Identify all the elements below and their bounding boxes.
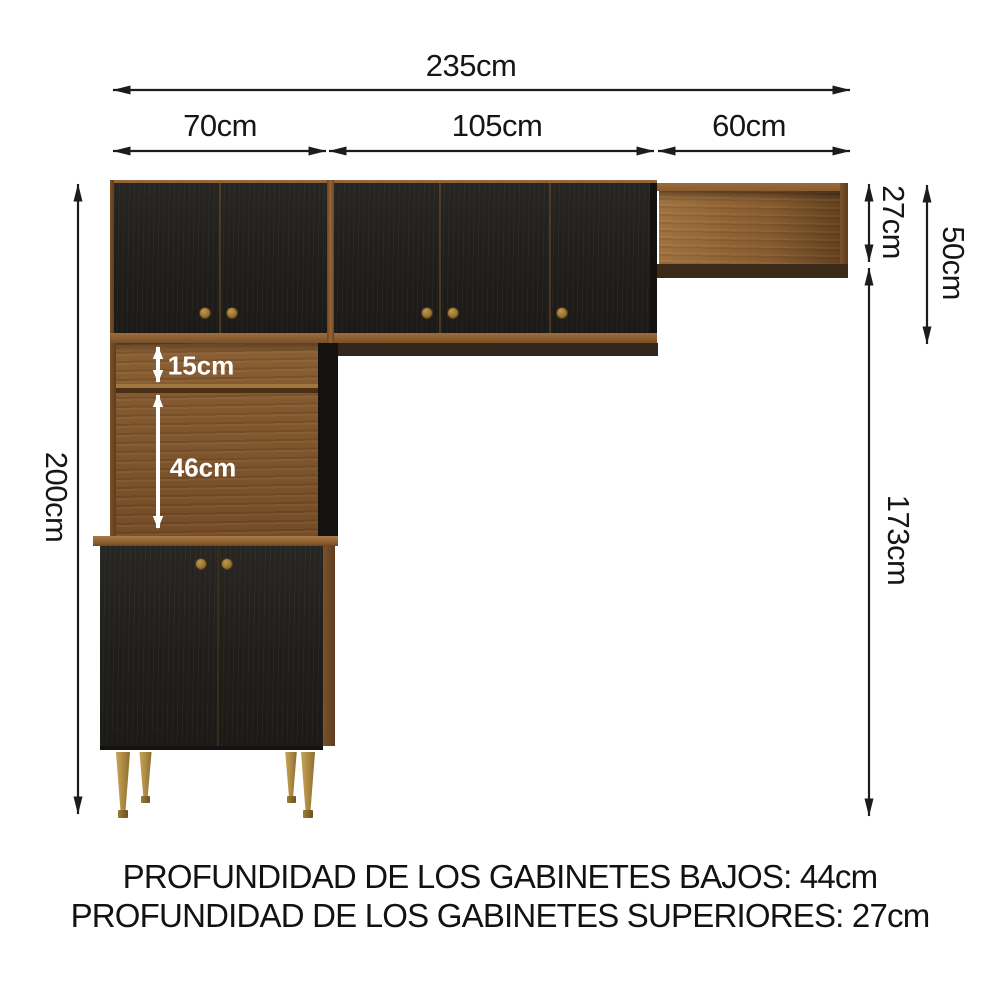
label-center-unit-width: 105cm [452, 108, 543, 144]
leg-front-left [112, 752, 134, 812]
leg-back-right [282, 752, 300, 798]
footer-line-upper-depth: PROFUNDIDAD DE LOS GABINETES SUPERIORES:… [0, 896, 1000, 935]
wall-shelf-top-edge [657, 183, 848, 191]
left-upper-door-gap [219, 183, 221, 333]
knob-base-1 [195, 558, 207, 570]
knob-center-upper-3 [556, 307, 568, 319]
hutch-shelf [116, 384, 318, 393]
footer-depth-notes: PROFUNDIDAD DE LOS GABINETES BAJOS: 44cm… [0, 857, 1000, 935]
label-total-height: 200cm [38, 452, 74, 543]
base-cabinet-right-side [323, 546, 335, 746]
center-upper-cabinet-doors [334, 183, 650, 333]
leg-back-left [136, 752, 155, 798]
wall-shelf-interior [659, 191, 840, 264]
center-upper-door-gap-2 [549, 183, 551, 333]
knob-base-2 [221, 558, 233, 570]
label-right-unit-width: 60cm [712, 108, 786, 144]
knob-center-upper-1 [421, 307, 433, 319]
label-upper-cabinet-height: 50cm [935, 226, 971, 300]
label-total-width: 235cm [426, 48, 517, 84]
label-left-unit-width: 70cm [183, 108, 257, 144]
counter-top [93, 536, 338, 546]
leg-front-right-foot [303, 810, 313, 818]
left-upper-cabinet-doors [114, 183, 333, 333]
label-below-shelf-height: 173cm [880, 495, 916, 586]
wall-shelf-inner-shadow [659, 191, 840, 201]
leg-front-right [297, 752, 319, 812]
unit-separator-strip [327, 180, 334, 343]
diagram-canvas: 235cm 70cm 105cm 60cm 200cm 27cm 50cm 17… [0, 0, 1000, 1000]
label-wall-shelf-height: 27cm [875, 185, 911, 259]
footer-line-lower-depth: PROFUNDIDAD DE LOS GABINETES BAJOS: 44cm [0, 857, 1000, 896]
center-upper-cabinet-bottom-strip [334, 333, 657, 343]
wall-shelf-bottom-strip [657, 264, 848, 278]
knob-left-upper-2 [226, 307, 238, 319]
leg-back-left-foot [141, 796, 150, 803]
knob-left-upper-1 [199, 307, 211, 319]
center-upper-door-gap-1 [439, 183, 441, 333]
leg-back-right-foot [287, 796, 296, 803]
base-cabinet-doors [100, 546, 323, 746]
center-upper-cabinet [334, 180, 657, 343]
center-upper-cabinet-right-side [650, 183, 657, 333]
base-door-gap [217, 546, 219, 746]
knob-center-upper-2 [447, 307, 459, 319]
base-cabinet [100, 546, 335, 750]
base-cabinet-bottom-edge [100, 746, 323, 750]
label-niche-top-height: 15cm [168, 351, 235, 382]
label-niche-bottom-height: 46cm [170, 453, 237, 484]
center-upper-cabinet-soffit [334, 343, 658, 356]
left-upper-cabinet-bottom-strip [110, 333, 333, 343]
hutch-right-panel [318, 343, 338, 536]
left-upper-cabinet [110, 180, 333, 343]
leg-front-left-foot [118, 810, 128, 818]
wall-open-shelf [657, 183, 848, 278]
